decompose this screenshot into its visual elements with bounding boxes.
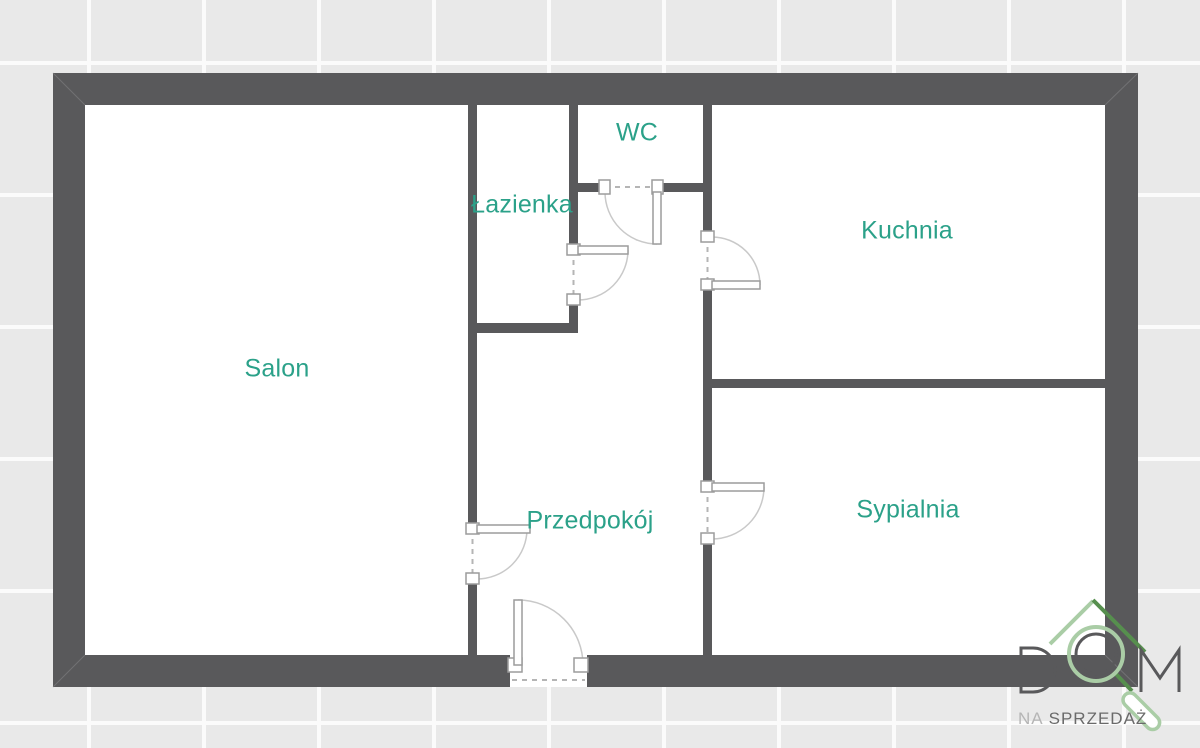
wall-kuchnia-sypialnia [712,379,1105,388]
logo-tagline: NASPRZEDAŻ [1018,710,1147,727]
floor-plan-canvas: Salon Łazienka WC Kuchnia Przedpokój Syp… [0,0,1200,748]
door-jamb-sypialnia-bottom [701,533,714,544]
room-label-wc: WC [616,121,658,146]
wall-outer-bottom-left [53,655,510,687]
wall-lazienka-bottom [468,323,577,333]
door-jamb-lazienka-bottom [567,294,580,305]
room-label-przedpokoj: Przedpokój [526,509,653,534]
logo-letter-m-icon [1141,650,1179,692]
door-jamb-wc-left [599,180,610,194]
wall-corridor-right-lower [703,539,712,655]
logo-tagline-main: SPRZEDAŻ [1049,709,1148,728]
wall-outer-left [53,73,85,687]
wall-outer-right [1105,73,1138,687]
door-leaf-entrance [514,600,522,665]
wall-salon-lower [468,579,477,655]
door-leaf-wc [653,192,661,244]
door-jamb-entrance-right [574,658,588,672]
wall-lazienka-wc-upper [569,105,578,250]
door-jamb-salon-bottom [466,573,479,584]
wall-salon-upper [468,105,477,529]
room-label-salon: Salon [245,357,310,382]
logo-tagline-prefix: NA [1018,709,1044,728]
wall-corridor-right-middle [703,285,712,487]
wall-wc-bottom-right [657,183,703,192]
floor-plan-drawing [0,0,1200,748]
wall-outer-top [53,73,1138,105]
door-leaf-kuchnia [712,281,760,289]
room-label-kuchnia: Kuchnia [861,219,953,244]
wall-corridor-right-upper [703,105,712,237]
door-jamb-kuchnia-top [701,231,714,242]
door-leaf-lazienka [578,246,628,254]
door-leaf-salon [477,525,530,533]
room-label-lazienka: Łazienka [471,193,573,218]
room-label-sypialnia: Sypialnia [856,498,959,523]
door-leaf-sypialnia [712,483,764,491]
